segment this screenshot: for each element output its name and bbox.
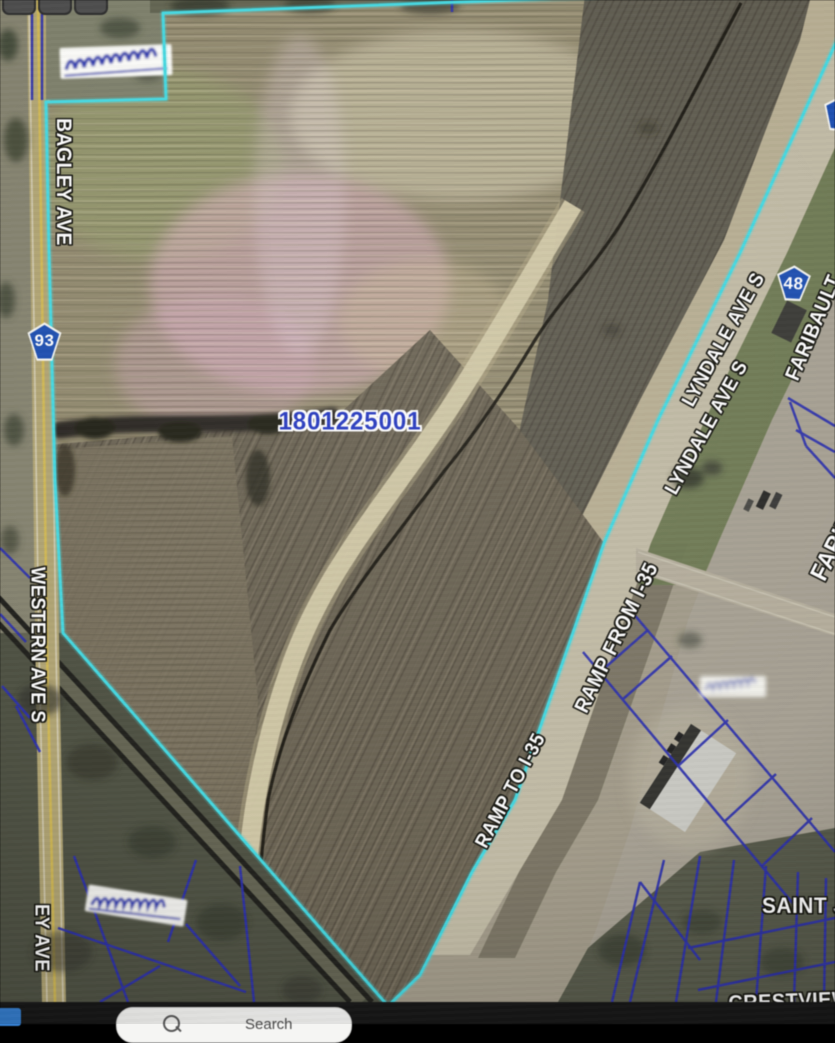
screen-photo: BAGLEY AVE WESTERN AVE S EY AVE LYNDALE … [0,0,835,1024]
street-label-bagley: BAGLEY AVE [51,118,75,246]
street-label-western: WESTERN AVE S [26,567,49,723]
parcel-id-label[interactable]: 1801225001 [278,408,421,437]
search-placeholder: Search [245,1016,293,1033]
street-label-saint: SAINT J [762,893,835,919]
aerial-map-canvas[interactable] [0,0,835,1002]
blurred-parcel-label-topleft [59,44,172,79]
window-control-button[interactable] [38,0,72,15]
taskbar-search-box[interactable]: Search [116,1007,352,1043]
window-control-button[interactable] [74,0,108,15]
window-control-button[interactable] [2,0,36,15]
route-48-number: 48 [783,273,804,294]
map-viewport[interactable]: BAGLEY AVE WESTERN AVE S EY AVE LYNDALE … [0,0,835,1002]
route-93-number: 93 [35,331,55,351]
screen: { "taskbar": { "search_placeholder": "Se… [0,0,835,1024]
street-label-ey-ave: EY AVE [30,904,53,972]
taskbar-app-icon[interactable] [0,1008,21,1026]
blurred-parcel-label-midright [700,676,766,697]
taskbar: Search [0,1002,835,1024]
